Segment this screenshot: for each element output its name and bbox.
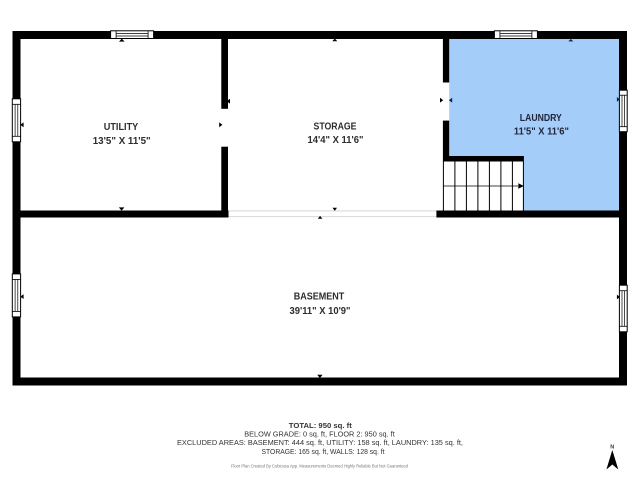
svg-text:Floor Plan Created By Cubicasa: Floor Plan Created By Cubicasa App. Meas…	[231, 463, 409, 468]
svg-text:BASEMENT: BASEMENT	[294, 291, 345, 303]
svg-text:LAUNDRY: LAUNDRY	[520, 112, 562, 124]
svg-text:EXCLUDED AREAS: BASEMENT: 444: EXCLUDED AREAS: BASEMENT: 444 sq. ft, UT…	[177, 440, 463, 447]
svg-text:14'4" X 11'6": 14'4" X 11'6"	[308, 134, 364, 146]
svg-text:11'5" X 11'6": 11'5" X 11'6"	[514, 125, 569, 137]
svg-text:N: N	[610, 445, 614, 451]
svg-text:39'11" X 10'9": 39'11" X 10'9"	[290, 305, 351, 317]
svg-text:STORAGE: 165 sq. ft, WALLS: 12: STORAGE: 165 sq. ft, WALLS: 128 sq. ft	[262, 449, 385, 456]
svg-text:STORAGE: STORAGE	[314, 120, 357, 132]
svg-text:TOTAL: 950 sq. ft: TOTAL: 950 sq. ft	[289, 423, 353, 430]
svg-text:BELOW GRADE: 0 sq. ft, FLOOR 2: BELOW GRADE: 0 sq. ft, FLOOR 2: 950 sq. …	[244, 432, 395, 439]
svg-text:13'5" X 11'5": 13'5" X 11'5"	[93, 135, 151, 147]
svg-text:UTILITY: UTILITY	[104, 121, 139, 133]
